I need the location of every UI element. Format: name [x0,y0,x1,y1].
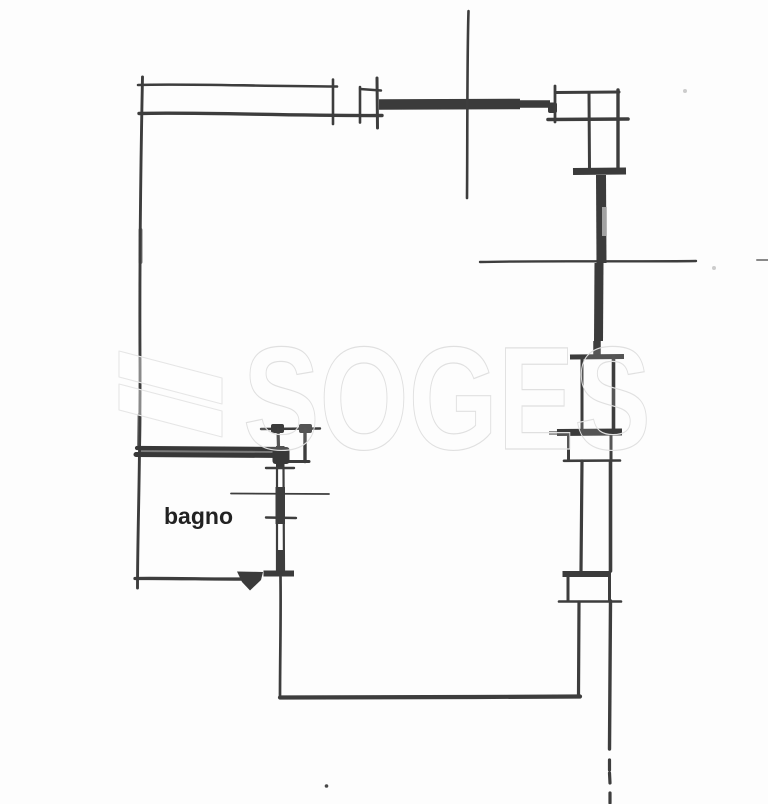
svg-text:SOGES: SOGES [243,316,651,480]
svg-text:bagno: bagno [164,503,233,529]
